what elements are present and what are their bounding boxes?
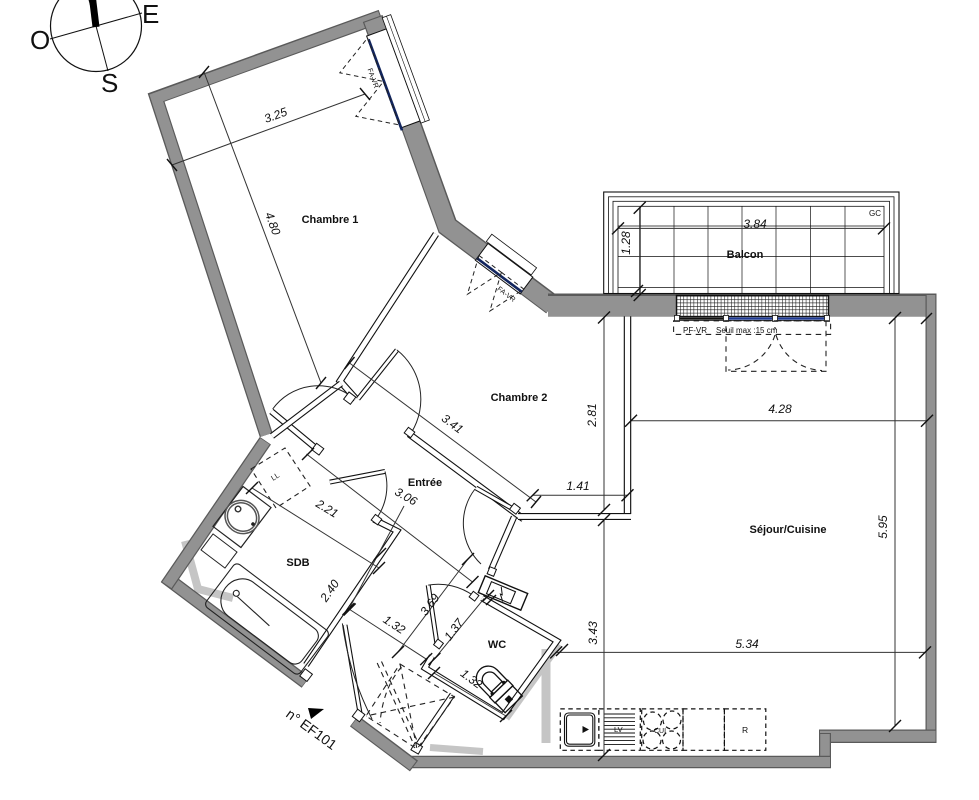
svg-text:Seuil max :15 cm: Seuil max :15 cm xyxy=(716,326,778,335)
svg-text:Chambre 1: Chambre 1 xyxy=(302,214,359,226)
svg-text:3.84: 3.84 xyxy=(743,217,767,231)
svg-text:5.34: 5.34 xyxy=(735,637,759,651)
svg-text:SDB: SDB xyxy=(286,557,309,569)
svg-text:Entrée: Entrée xyxy=(408,477,442,489)
svg-text:^: ^ xyxy=(773,326,777,335)
svg-text:Chambre 2: Chambre 2 xyxy=(491,392,548,404)
svg-text:4.28: 4.28 xyxy=(768,402,792,416)
svg-text:2.81: 2.81 xyxy=(585,403,599,427)
svg-text:Balcon: Balcon xyxy=(727,249,764,261)
svg-text:1.28: 1.28 xyxy=(619,231,633,255)
svg-text:CUI: CUI xyxy=(654,728,666,735)
svg-text:WC: WC xyxy=(488,639,506,651)
svg-text:5.95: 5.95 xyxy=(876,515,890,539)
svg-text:1.41: 1.41 xyxy=(566,479,589,493)
svg-text:PF-VR: PF-VR xyxy=(683,326,707,335)
svg-text:R: R xyxy=(742,725,748,735)
svg-text:GC: GC xyxy=(869,209,881,218)
svg-text:LV: LV xyxy=(614,725,623,734)
svg-text:S: S xyxy=(101,68,118,98)
svg-text:3.43: 3.43 xyxy=(586,621,600,645)
svg-text:E: E xyxy=(142,0,159,29)
svg-text:Séjour/Cuisine: Séjour/Cuisine xyxy=(749,524,826,536)
svg-text:O: O xyxy=(30,25,50,55)
